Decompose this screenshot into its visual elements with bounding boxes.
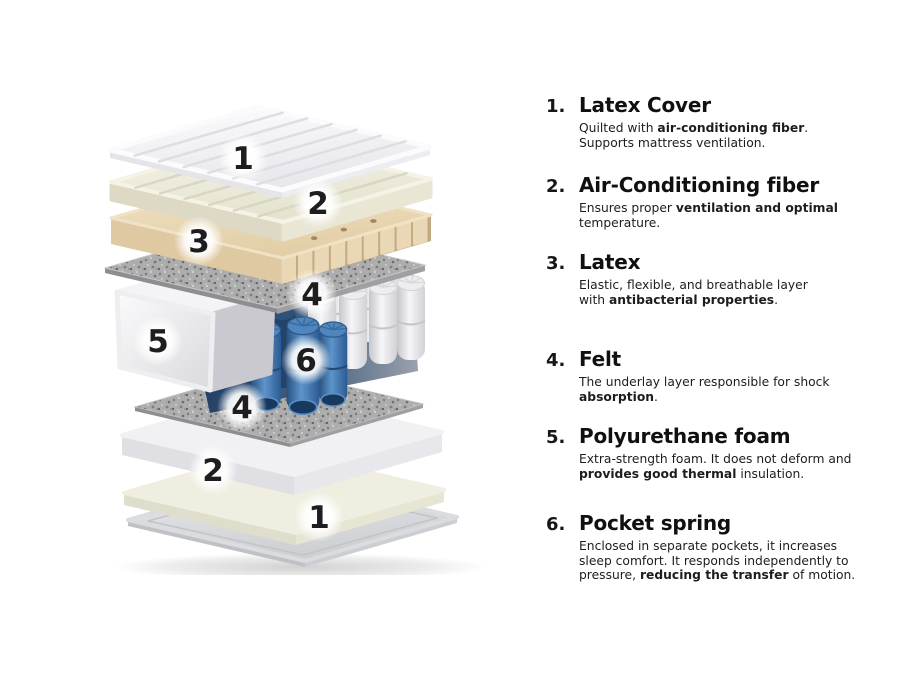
- layer-number: 1.: [546, 96, 579, 117]
- layer-description: Enclosed in separate pockets, it increas…: [579, 539, 894, 583]
- layer-description: Quilted with air-conditioning fiber.Supp…: [579, 121, 894, 150]
- layer-title: Pocket spring: [579, 511, 731, 535]
- layer-number: 4.: [546, 350, 579, 371]
- layer-item-3: 3. Latex Elastic, flexible, and breathab…: [546, 250, 894, 307]
- layer-title: Air-Conditioning fiber: [579, 173, 819, 197]
- layer-item-4: 4. Felt The underlay layer responsible f…: [546, 347, 894, 404]
- layer-title: Felt: [579, 347, 621, 371]
- layer-item-2: 2. Air-Conditioning fiber Ensures proper…: [546, 173, 894, 230]
- layer-number: 2.: [546, 176, 579, 197]
- layer-number: 5.: [546, 427, 579, 448]
- layer-description: Elastic, flexible, and breathable layerw…: [579, 278, 894, 307]
- layer-description: The underlay layer responsible for shock…: [579, 375, 894, 404]
- layer-description: Ensures proper ventilation and optimal t…: [579, 201, 894, 230]
- layer-title: Polyurethane foam: [579, 424, 790, 448]
- layer-item-1: 1. Latex Cover Quilted with air-conditio…: [546, 93, 894, 150]
- layer-title: Latex Cover: [579, 93, 711, 117]
- layer-number: 3.: [546, 253, 579, 274]
- layer-number: 6.: [546, 514, 579, 535]
- layer-description: Extra-strength foam. It does not deform …: [579, 452, 894, 481]
- mattress-infographic: 1 2 3 4 5 6 4 2 1 1. Latex Cover Quilted…: [0, 0, 900, 675]
- layer-list: 1. Latex Cover Quilted with air-conditio…: [0, 0, 900, 675]
- layer-item-6: 6. Pocket spring Enclosed in separate po…: [546, 511, 894, 583]
- layer-title: Latex: [579, 250, 640, 274]
- layer-item-5: 5. Polyurethane foam Extra-strength foam…: [546, 424, 894, 481]
